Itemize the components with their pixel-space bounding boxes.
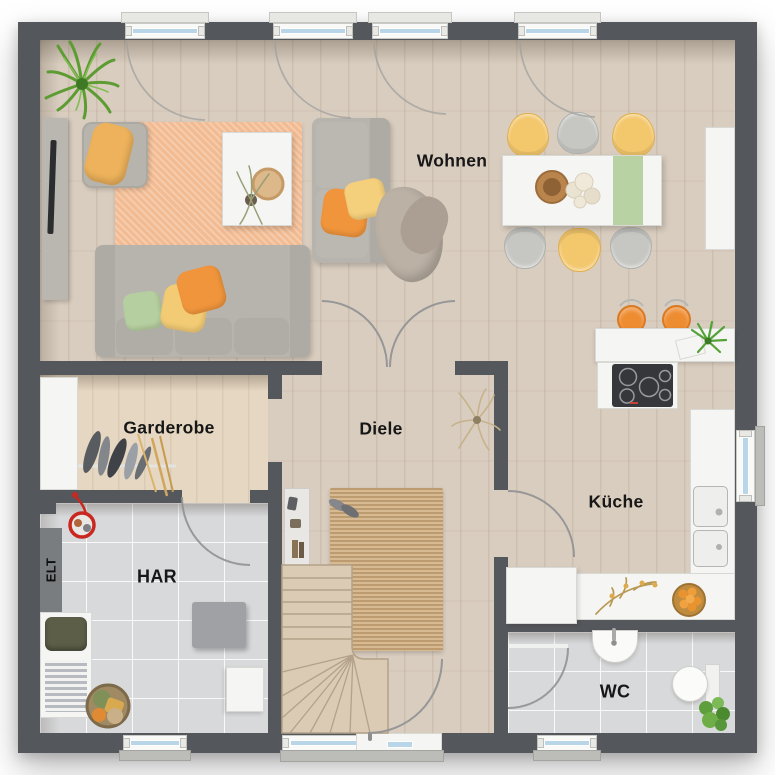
wall-exterior-right: [735, 40, 757, 733]
coffee-table: [222, 132, 292, 226]
sink-basin: [693, 530, 728, 567]
hallway-shelf: [284, 488, 310, 568]
front-door-glass: [387, 741, 413, 748]
toilet-bowl: [672, 666, 708, 702]
room-label-wohnen: Wohnen: [417, 151, 488, 172]
window-bottom-har: [123, 735, 187, 751]
hallway-jute-rug: [330, 488, 443, 651]
room-label-diele: Diele: [359, 419, 402, 440]
wall-exterior-left: [18, 40, 40, 733]
door-handle-stem: [368, 729, 372, 741]
sofa-armrest-left: [95, 245, 115, 357]
room-label-kueche: Küche: [589, 492, 644, 513]
room-label-har: HAR: [137, 567, 177, 588]
window-sill: [121, 12, 209, 23]
window-sill-outer: [533, 750, 601, 761]
wall-living-garderobe: [40, 361, 322, 375]
kitchen-tall-cabinet: [705, 127, 735, 250]
window-sill: [368, 12, 452, 23]
room-label-wc: WC: [600, 682, 631, 703]
window-glass: [379, 28, 441, 34]
window-glass: [132, 28, 198, 34]
kitchen-peninsula-counter: [595, 328, 735, 362]
entrance-sidelight-glass: [290, 740, 360, 746]
table-runner-green: [613, 156, 643, 225]
window-glass: [280, 28, 346, 34]
window-top-4: [518, 23, 597, 39]
dining-chair-gray: [557, 112, 599, 154]
window-glass: [525, 28, 590, 34]
sofa-armrest-right: [290, 245, 310, 357]
har-storage-box: [192, 602, 246, 648]
window-glass: [742, 437, 749, 495]
folded-towels-green: [45, 617, 87, 651]
sink-basin: [693, 486, 728, 527]
dining-chair-yellow: [507, 113, 549, 157]
room-label-garderobe: Garderobe: [123, 418, 214, 439]
window-top-3: [372, 23, 448, 39]
dining-chair-yellow: [612, 113, 655, 157]
pillow-green: [122, 290, 165, 333]
folded-linens-striped: [45, 660, 87, 712]
wall-stub-garderobe-top: [268, 375, 282, 399]
wall-stub-kitchen-top: [455, 361, 508, 375]
shadow-top: [40, 40, 735, 64]
wall-garderobe-har-left: [40, 490, 182, 503]
window-bottom-wc: [537, 735, 597, 751]
window-sill: [269, 12, 357, 23]
window-top-2: [273, 23, 353, 39]
fridge: [506, 567, 577, 624]
sofa-side-seat-cushion: [316, 122, 368, 188]
window-sill-outer: [119, 750, 191, 761]
window-sill-outer: [755, 426, 765, 506]
window-glass: [130, 740, 180, 746]
wall-pier-har: [40, 500, 56, 514]
cooktop: [612, 364, 673, 407]
sofa-back-cushion: [234, 318, 289, 355]
har-appliance: [226, 667, 264, 712]
window-top-1: [125, 23, 205, 39]
wall-har-diele: [268, 462, 282, 733]
room-label-elt: ELT: [44, 558, 59, 583]
floorplan-canvas: Wohnen Garderobe Diele Küche HAR ELT WC: [0, 0, 775, 775]
wall-diele-kitchen-upper: [494, 375, 508, 490]
entrance-step-outer: [280, 750, 444, 762]
window-sill: [514, 12, 601, 23]
shadow-har: [40, 503, 268, 517]
window-glass: [544, 740, 590, 746]
window-right-kitchen: [736, 430, 755, 502]
garderobe-closet: [40, 377, 78, 490]
